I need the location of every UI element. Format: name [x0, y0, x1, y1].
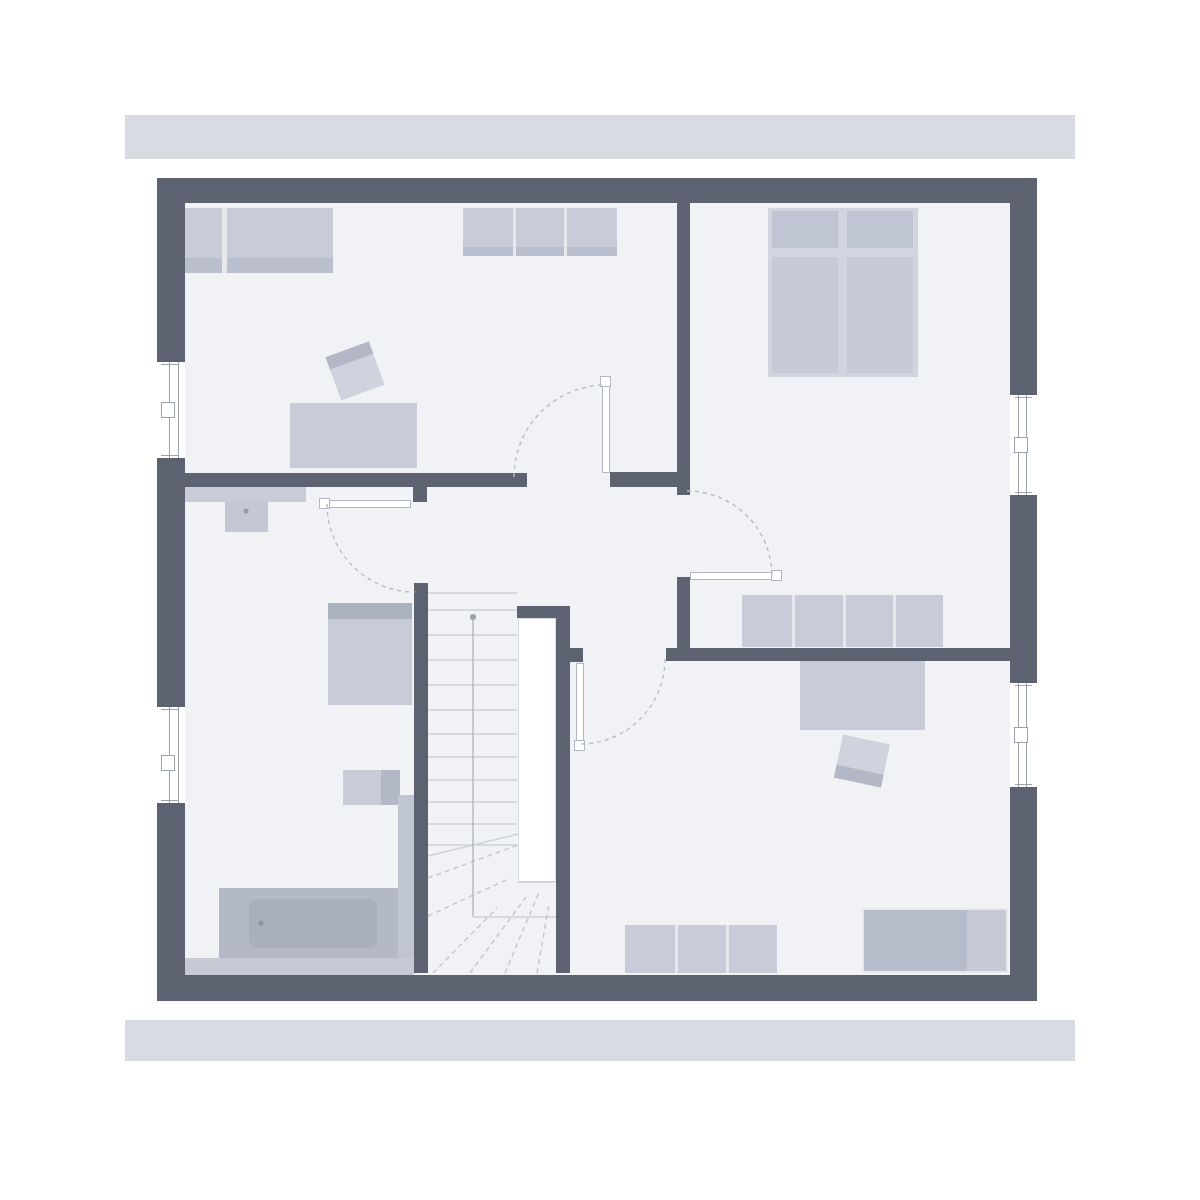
window-left-2 — [157, 707, 185, 803]
window-right-1-tick-top — [1015, 397, 1032, 398]
window-left-1-tick-bottom — [161, 455, 179, 456]
closet-north-shade — [463, 247, 617, 256]
outer-wall-left — [157, 178, 185, 1001]
desk-right-room — [800, 661, 925, 730]
window-left-2-frame-line-b — [178, 707, 179, 803]
bed-mattress-left — [772, 257, 838, 373]
closet-north-divider-2 — [564, 208, 567, 256]
door-cap-south-room — [574, 740, 585, 751]
window-left-1-tick-top — [161, 364, 179, 365]
floor-plan-canvas — [0, 0, 1200, 1200]
door-leaf-left-room — [602, 378, 610, 473]
door-leaf-bath — [321, 500, 411, 508]
wall-stair-west — [414, 583, 428, 973]
wall-bath-stub — [413, 484, 427, 502]
bed-pillow-left — [772, 211, 838, 248]
window-left-2-sash — [161, 755, 175, 771]
wall-bedrooms-divider — [677, 203, 690, 495]
bed-pillow-right — [847, 211, 913, 248]
stair-void — [518, 618, 556, 882]
sideboard-hall-divider-3 — [893, 595, 896, 647]
door-leaf-bedroom2 — [690, 572, 780, 580]
bath-shelf — [185, 487, 306, 502]
bath-wardrobe-shade — [328, 603, 412, 619]
window-left-1-frame-line-b — [178, 362, 179, 458]
door-cap-bath — [319, 498, 330, 509]
window-right-2-tick-bottom — [1015, 784, 1032, 785]
wall-south-rooms — [666, 648, 1010, 661]
sideboard-south — [625, 925, 777, 973]
window-left-2-tick-top — [161, 709, 179, 710]
wall-bath-north — [185, 473, 527, 487]
window-left-2-tick-bottom — [161, 800, 179, 801]
outer-wall-right — [1010, 178, 1037, 1001]
door-cap-left-room — [600, 376, 611, 387]
window-left-1-sash — [161, 402, 175, 418]
sideboard-hall-divider-1 — [792, 595, 795, 647]
closet-north-divider-1 — [513, 208, 516, 256]
desk-left-room — [290, 403, 417, 468]
bath-wardrobe — [328, 619, 412, 705]
wall-stair-east — [556, 606, 570, 973]
outer-wall-top — [157, 178, 1037, 203]
wall-bedroom2-west — [677, 577, 690, 650]
door-leaf-south-room — [576, 663, 584, 750]
bath-cabinet-left — [343, 770, 381, 805]
bath-side-counter — [398, 795, 414, 975]
window-right-1-sash — [1014, 437, 1028, 453]
dresser-south-east-right-section — [967, 910, 1006, 971]
outer-wall-bottom — [157, 975, 1037, 1001]
door-cap-bedroom2 — [771, 570, 782, 581]
sideboard-south-divider-2 — [726, 925, 729, 973]
wall-stair-north — [517, 606, 561, 618]
bath-floor-strip — [185, 958, 414, 975]
window-right-2 — [1010, 683, 1037, 787]
bathtub-inner — [249, 899, 377, 948]
sideboard-hall-divider-2 — [843, 595, 846, 647]
wall-hall-north — [610, 472, 690, 487]
window-left-1 — [157, 362, 185, 458]
bed-mattress-right — [847, 257, 913, 373]
washbasin — [225, 502, 268, 532]
wardrobe-top-left-divider — [222, 208, 227, 273]
bottom-facade-bar — [125, 1020, 1075, 1061]
window-right-2-sash — [1014, 727, 1028, 743]
wardrobe-top-left-shade — [185, 258, 333, 273]
window-right-2-tick-top — [1015, 685, 1032, 686]
window-right-1-tick-bottom — [1015, 492, 1032, 493]
sideboard-south-divider-1 — [675, 925, 678, 973]
top-facade-bar — [125, 115, 1075, 159]
window-right-1 — [1010, 395, 1037, 495]
